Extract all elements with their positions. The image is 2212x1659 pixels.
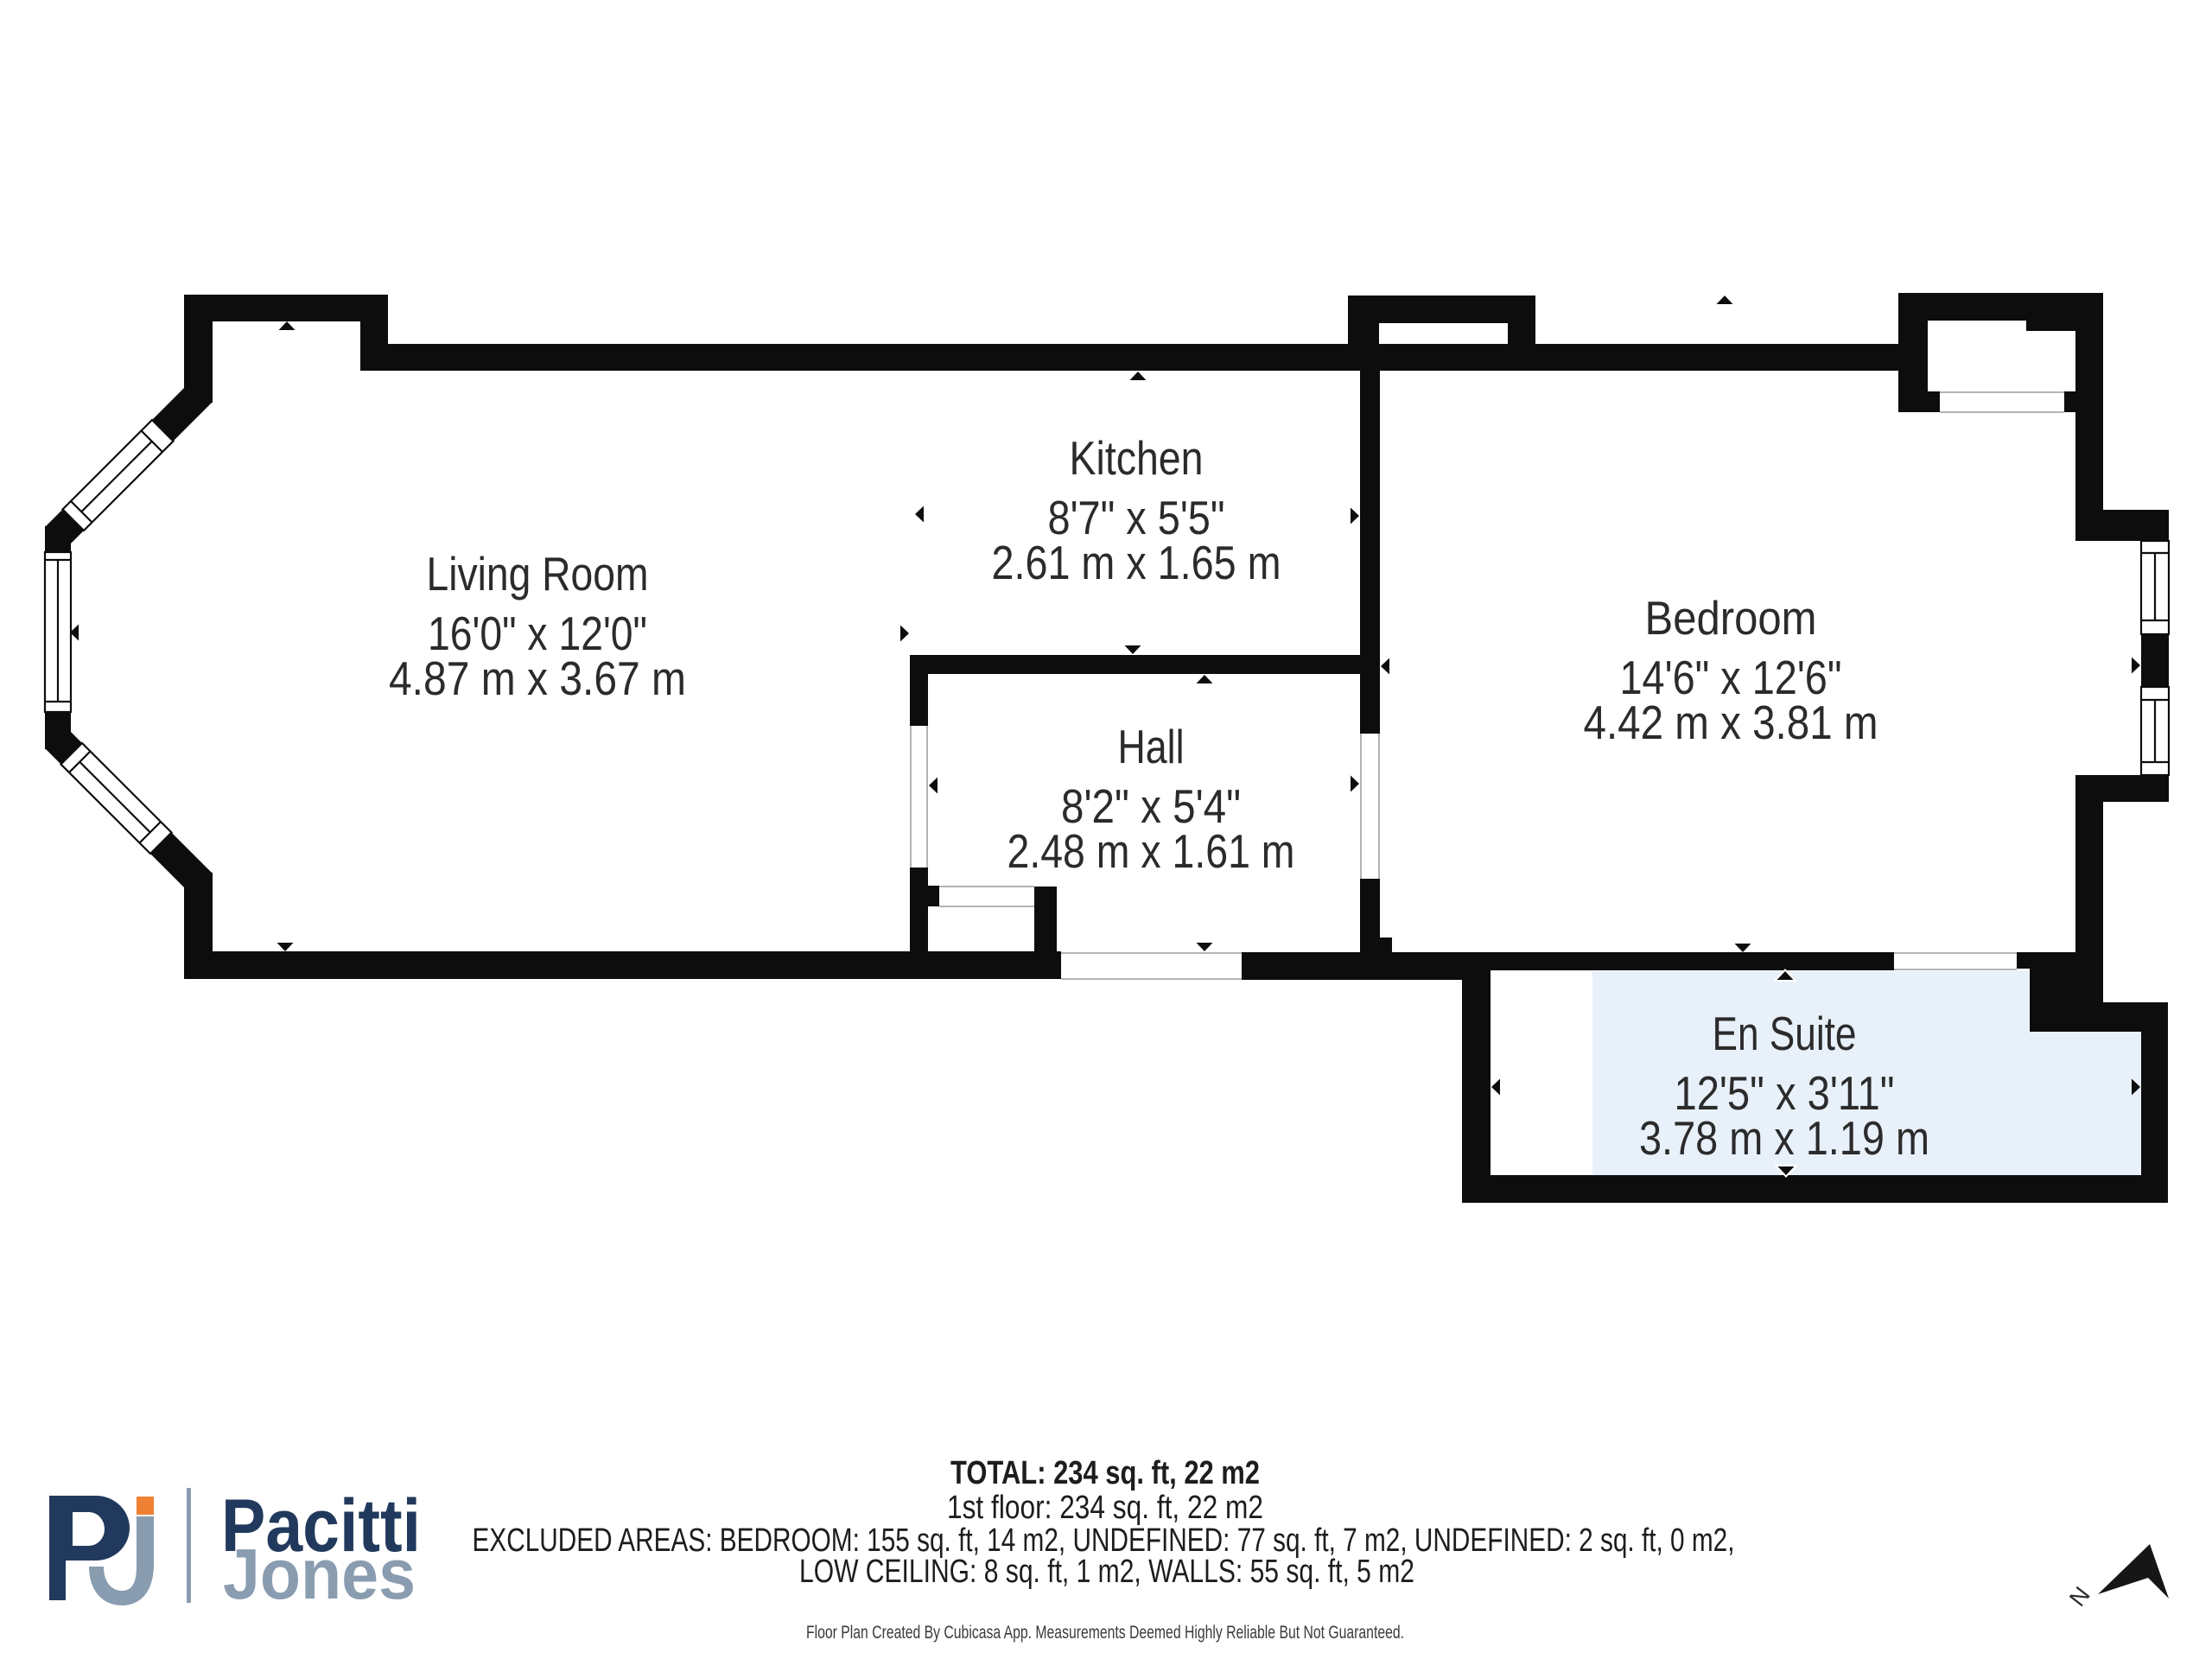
svg-text:Living Room: Living Room xyxy=(427,547,649,601)
svg-text:2.48 m x 1.61 m: 2.48 m x 1.61 m xyxy=(1007,824,1295,878)
svg-text:En Suite: En Suite xyxy=(1713,1007,1857,1060)
svg-text:2.61 m x 1.65 m: 2.61 m x 1.65 m xyxy=(992,536,1281,589)
svg-text:Jones: Jones xyxy=(223,1534,416,1614)
svg-text:4.42 m x 3.81 m: 4.42 m x 3.81 m xyxy=(1584,696,1878,749)
svg-text:Bedroom: Bedroom xyxy=(1645,591,1817,645)
svg-text:Floor Plan Created By Cubicasa: Floor Plan Created By Cubicasa App. Meas… xyxy=(806,1623,1404,1643)
svg-text:1st floor: 234 sq. ft, 22 m2: 1st floor: 234 sq. ft, 22 m2 xyxy=(947,1490,1263,1526)
svg-text:Hall: Hall xyxy=(1118,720,1185,773)
svg-text:3.78 m x 1.19 m: 3.78 m x 1.19 m xyxy=(1639,1111,1929,1165)
svg-text:TOTAL: 234 sq. ft, 22 m2: TOTAL: 234 sq. ft, 22 m2 xyxy=(950,1455,1260,1491)
svg-text:Kitchen: Kitchen xyxy=(1070,431,1204,485)
svg-text:4.87 m x 3.67 m: 4.87 m x 3.67 m xyxy=(389,652,686,705)
svg-text:LOW CEILING: 8 sq. ft, 1 m2, W: LOW CEILING: 8 sq. ft, 1 m2, WALLS: 55 s… xyxy=(799,1554,1414,1590)
